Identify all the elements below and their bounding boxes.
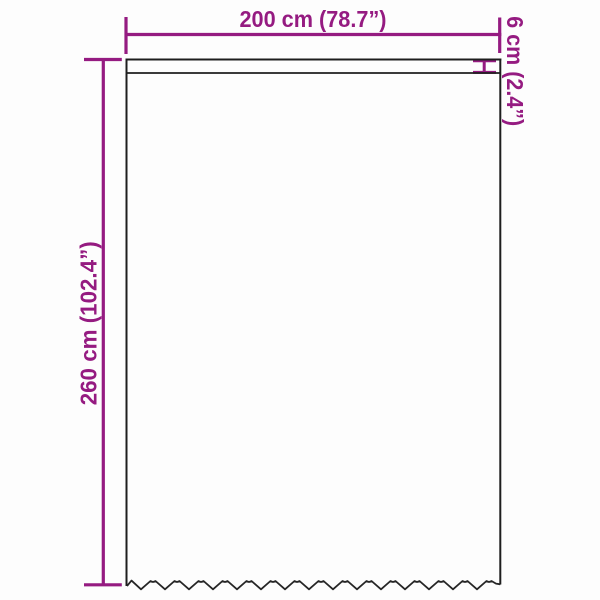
svg-text:260 cm (102.4”): 260 cm (102.4”) bbox=[76, 241, 102, 405]
svg-text:6 cm (2.4”): 6 cm (2.4”) bbox=[502, 16, 528, 126]
svg-text:200 cm (78.7”): 200 cm (78.7”) bbox=[240, 6, 387, 32]
